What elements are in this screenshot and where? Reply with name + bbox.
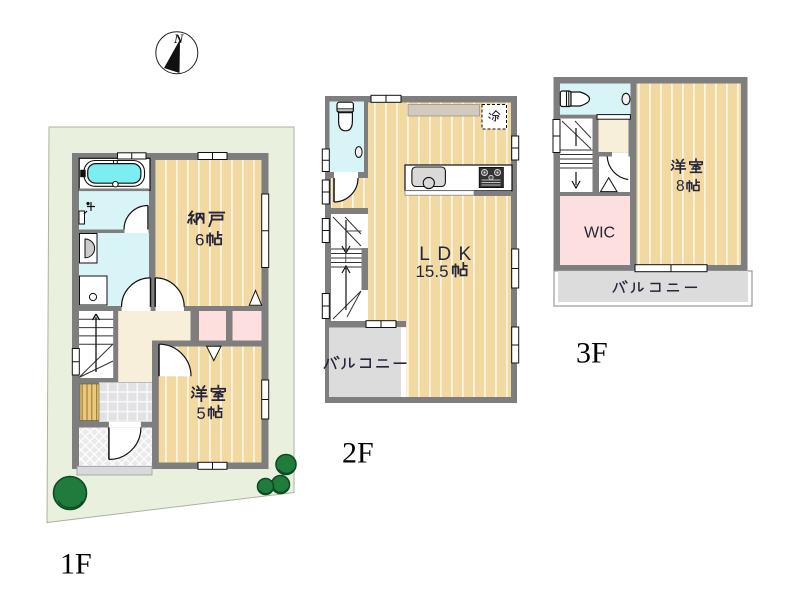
svg-text:8: 8 [676, 178, 685, 195]
svg-text:6: 6 [195, 231, 204, 250]
svg-text:5: 5 [197, 405, 206, 423]
svg-text:15.5: 15.5 [415, 262, 448, 281]
svg-text:N: N [173, 31, 184, 46]
svg-text:WIC: WIC [584, 225, 615, 242]
svg-text:2F: 2F [342, 437, 374, 470]
svg-text:3F: 3F [576, 337, 608, 370]
svg-text:1F: 1F [60, 548, 92, 581]
